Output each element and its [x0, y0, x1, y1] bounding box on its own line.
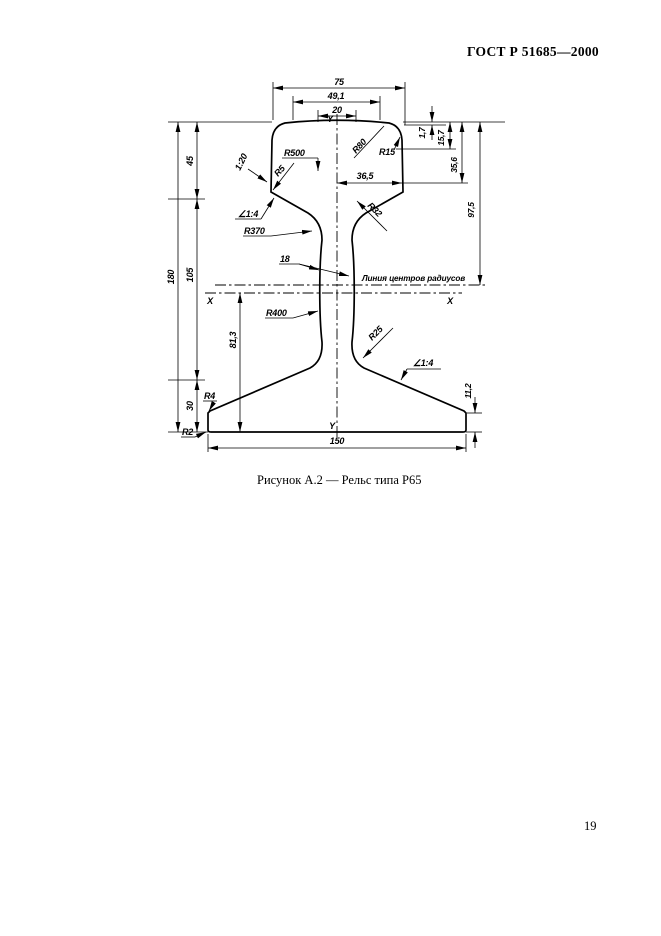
rail-profile-drawing: 75 49,1 20 Y R500 R80 R15 1:20 R5 36,5 ∠… [160, 70, 510, 470]
radius-r2-label: R2 [182, 427, 193, 437]
y-axis-bottom-label: Y [329, 421, 336, 431]
radius-r370-label: R370 [244, 226, 265, 236]
radius-r80-label: R80 [350, 137, 368, 156]
dim-15-7-label: 15,7 [436, 130, 446, 146]
radius-r15-label: R15 [379, 147, 396, 157]
dim-97-5-label: 97,5 [466, 202, 476, 218]
x-axis-left-label: X [206, 296, 214, 306]
figure-caption: Рисунок А.2 — Рельс типа Р65 [257, 473, 421, 488]
radius-r25-label: R25 [366, 323, 385, 342]
dim-11-2-label: 11,2 [463, 383, 473, 398]
radius-r400-label: R400 [266, 308, 287, 318]
slope-1-20-label: 1:20 [233, 152, 250, 172]
dim-75-label: 75 [334, 77, 345, 87]
radius-centers-note: Линия центров радиусов [361, 274, 465, 283]
dim-180-label: 180 [166, 270, 176, 285]
x-axis-right-label: X [446, 296, 454, 306]
dim-81-3-label: 81,3 [228, 331, 238, 348]
dimension-lines [178, 88, 480, 448]
radius-r4-label: R4 [204, 391, 215, 401]
document-page: { "header": { "title": "ГОСТ Р 51685—200… [0, 0, 661, 936]
dim-18-label: 18 [280, 254, 290, 264]
dim-36-5-label: 36,5 [357, 171, 375, 181]
dim-35-6-label: 35,6 [449, 157, 459, 173]
radius-r500-label: R500 [284, 148, 305, 158]
extension-lines [168, 82, 505, 452]
dim-105-label: 105 [185, 267, 195, 283]
standard-designation: ГОСТ Р 51685—2000 [467, 44, 599, 60]
slope-1-4-right-label: ∠1:4 [413, 358, 433, 368]
dim-49-1-label: 49,1 [327, 91, 345, 101]
rail-profile-figure: 75 49,1 20 Y R500 R80 R15 1:20 R5 36,5 ∠… [160, 70, 510, 470]
dim-150-label: 150 [330, 436, 345, 446]
dim-30-label: 30 [185, 401, 195, 411]
y-axis-top-label: Y [327, 114, 334, 124]
dim-45-label: 45 [185, 155, 195, 167]
dim-1-7-label: 1,7 [417, 127, 427, 139]
page-number: 19 [584, 819, 597, 834]
radius-r32-label: R32 [366, 200, 384, 218]
slope-1-4-left-label: ∠1:4 [238, 209, 258, 219]
radius-r5-label: R5 [272, 163, 288, 179]
